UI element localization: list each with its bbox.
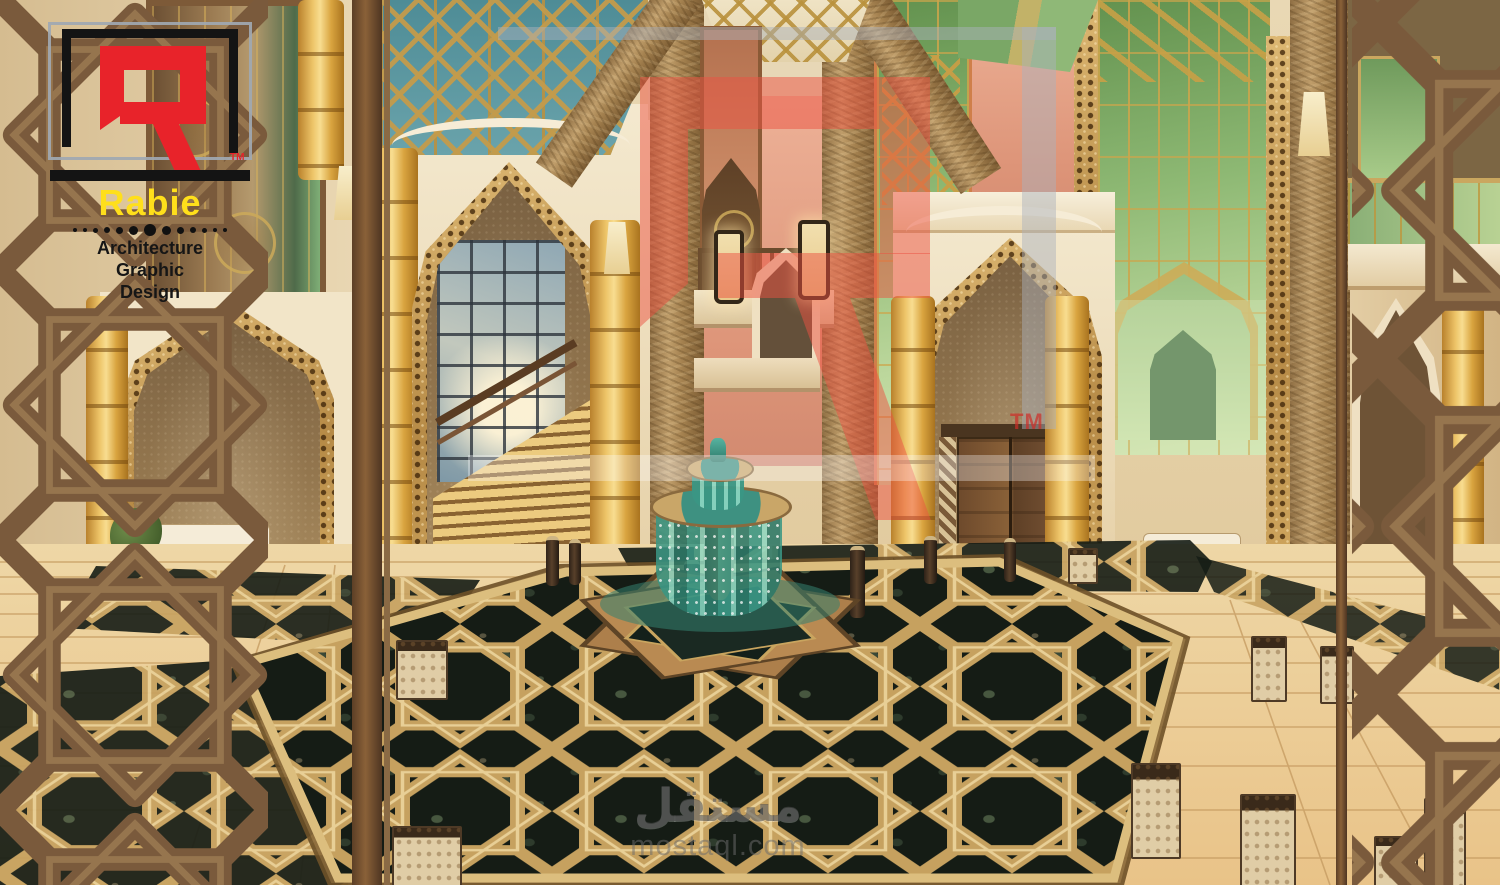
logo-service-line: Graphic bbox=[48, 260, 252, 281]
logo-dots-divider bbox=[48, 224, 252, 236]
center-watermark: TM bbox=[498, 27, 1058, 527]
logo-service-line: Design bbox=[48, 282, 252, 303]
watermark-frame-right bbox=[1022, 27, 1056, 429]
watermark-light-band bbox=[468, 455, 1095, 481]
logo-black-frame-left bbox=[62, 29, 71, 147]
logo-black-frame-top bbox=[62, 29, 238, 38]
watermark-frame-top bbox=[498, 27, 1056, 40]
rabie-logo: TM Rabie Architecture Graphic Design bbox=[48, 20, 252, 312]
logo-underline-bar bbox=[50, 170, 250, 181]
watermark-monogram bbox=[640, 77, 930, 519]
right-screen-post bbox=[1336, 0, 1347, 885]
mostaql-arabic-wordmark: مستقل bbox=[538, 780, 898, 830]
logo-trademark: TM bbox=[230, 152, 244, 163]
architectural-rendering: TM TM Rabie Architecture Graphic Design … bbox=[0, 0, 1500, 885]
logo-monogram bbox=[100, 46, 206, 170]
logo-brand-name: Rabie bbox=[48, 182, 252, 224]
logo-black-frame-right bbox=[229, 29, 238, 153]
left-screen-post bbox=[352, 0, 382, 885]
logo-service-line: Architecture bbox=[48, 238, 252, 259]
right-mashrabiya-lattice bbox=[1352, 0, 1500, 885]
mostaql-url-text: mostaql.com bbox=[538, 830, 898, 862]
watermark-trademark: TM bbox=[1010, 409, 1044, 435]
mostaql-watermark: مستقل mostaql.com bbox=[538, 780, 898, 862]
